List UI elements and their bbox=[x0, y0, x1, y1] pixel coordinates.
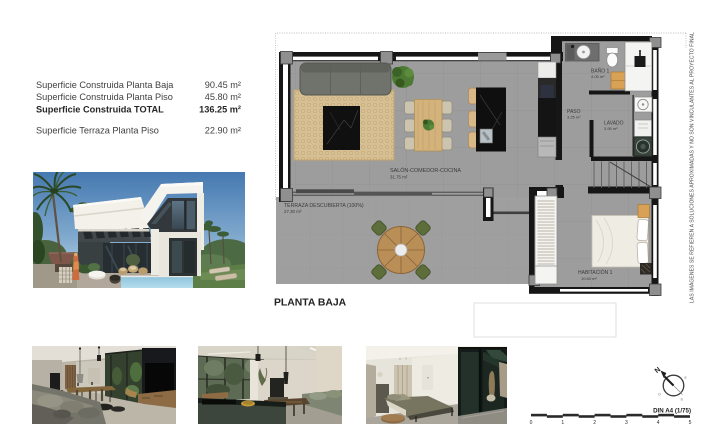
svg-text:3: 3 bbox=[625, 420, 628, 426]
svg-text:45.80 m²: 45.80 m² bbox=[205, 92, 241, 102]
svg-text:Superficie Construida TOTAL: Superficie Construida TOTAL bbox=[36, 105, 164, 115]
svg-text:3.95 m²: 3.95 m² bbox=[604, 126, 618, 131]
svg-text:5: 5 bbox=[689, 420, 692, 426]
svg-text:31.75 m²: 31.75 m² bbox=[390, 175, 408, 180]
svg-text:22.90 m²: 22.90 m² bbox=[205, 126, 241, 136]
svg-text:DIN A4 (1/75): DIN A4 (1/75) bbox=[653, 408, 691, 415]
svg-text:Superficie Construida Planta P: Superficie Construida Planta Piso bbox=[36, 92, 173, 102]
svg-text:Superficie Construida Planta B: Superficie Construida Planta Baja bbox=[36, 80, 174, 90]
svg-text:0: 0 bbox=[530, 420, 533, 426]
svg-text:90.45 m²: 90.45 m² bbox=[205, 80, 241, 90]
svg-text:Superficie Terraza Planta Piso: Superficie Terraza Planta Piso bbox=[36, 126, 159, 136]
svg-text:27.30 m²: 27.30 m² bbox=[284, 209, 302, 214]
svg-text:4: 4 bbox=[657, 420, 660, 426]
svg-text:10.60 m²: 10.60 m² bbox=[581, 276, 597, 281]
svg-text:PLANTA BAJA: PLANTA BAJA bbox=[274, 298, 347, 309]
svg-text:2: 2 bbox=[593, 420, 596, 426]
svg-text:1: 1 bbox=[561, 420, 564, 426]
svg-text:136.25 m²: 136.25 m² bbox=[199, 105, 241, 115]
svg-text:3.25 m²: 3.25 m² bbox=[567, 115, 581, 120]
svg-text:SALÓN-COMEDOR-COCINA: SALÓN-COMEDOR-COCINA bbox=[390, 167, 461, 174]
svg-text:4.05 m²: 4.05 m² bbox=[591, 74, 605, 79]
svg-text:O: O bbox=[658, 393, 661, 397]
svg-text:LAS IMÁGENES SE REFIEREN A SOL: LAS IMÁGENES SE REFIEREN A SOLUCIONES AP… bbox=[689, 32, 696, 303]
svg-text:HABITACIÓN 1: HABITACIÓN 1 bbox=[578, 269, 613, 276]
